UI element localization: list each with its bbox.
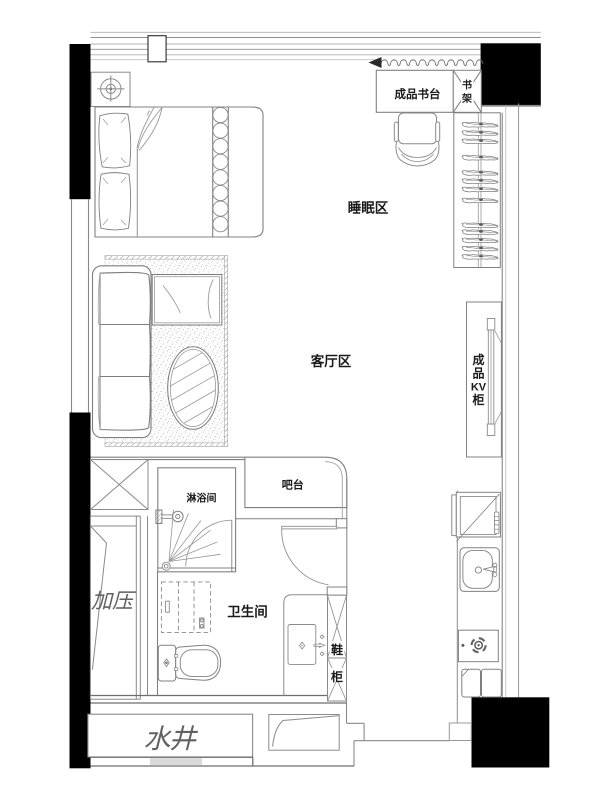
svg-text:卫生间: 卫生间	[227, 604, 268, 620]
svg-text:品: 品	[472, 367, 484, 381]
svg-text:加压: 加压	[91, 589, 137, 613]
svg-text:架: 架	[461, 92, 472, 105]
svg-text:睡眠区: 睡眠区	[348, 201, 389, 216]
svg-text:吧台: 吧台	[282, 478, 304, 492]
svg-text:鞋: 鞋	[331, 642, 343, 657]
svg-text:淋浴间: 淋浴间	[187, 492, 217, 505]
svg-text:客厅区: 客厅区	[310, 353, 352, 369]
svg-text:KV: KV	[471, 382, 487, 394]
svg-text:成品书台: 成品书台	[395, 87, 441, 101]
svg-text:成: 成	[472, 352, 484, 367]
svg-text:柜: 柜	[330, 669, 343, 684]
svg-text:书: 书	[462, 79, 472, 92]
svg-text:水井: 水井	[144, 724, 199, 754]
svg-text:柜: 柜	[471, 392, 484, 407]
